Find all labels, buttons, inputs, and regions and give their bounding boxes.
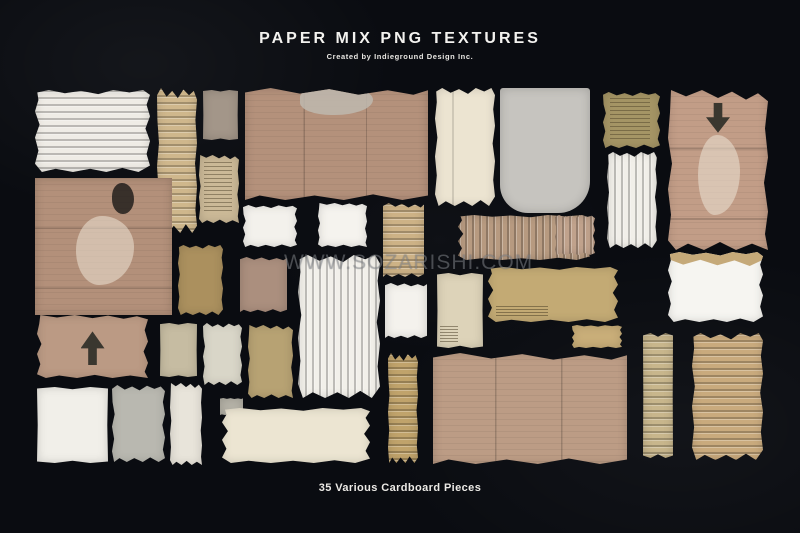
texture-piece-taupe-small-rectangle: [203, 90, 238, 140]
texture-piece-pink-corrugated-small: [555, 215, 595, 255]
texture-piece-kraft-panel-arrow-up: [37, 315, 148, 378]
texture-piece-kraft-panel-left-patched: [35, 178, 172, 315]
texture-piece-gray-torn-bottom-piece: [112, 385, 165, 462]
texture-piece-khaki-flat-rectangle: [160, 323, 197, 377]
texture-piece-gold-corrugated-mid-strip: [383, 203, 424, 277]
texture-piece-ivory-wide-bottom-piece: [222, 408, 370, 463]
texture-piece-gold-diagonal-strip: [388, 353, 418, 463]
texture-piece-white-scrap-3: [385, 283, 427, 338]
footer-caption: 35 Various Cardboard Pieces: [0, 482, 800, 494]
texture-piece-gold-wide-torn-piece: [488, 267, 618, 322]
texture-piece-white-corrugated-right: [607, 152, 657, 248]
texture-piece-tan-printed-scrap: [199, 155, 239, 223]
texture-piece-white-scrap-1: [243, 205, 297, 247]
arrow-up-mark: [81, 331, 105, 365]
texture-piece-cream-flat-printed: [437, 273, 483, 348]
texture-piece-white-ribbed-tall-center: [298, 255, 380, 398]
print-mark: [610, 98, 650, 140]
print-mark: [496, 306, 548, 318]
texture-piece-pink-panel-arrow-down: [668, 90, 768, 250]
texture-piece-white-over-tan-piece: [668, 252, 763, 322]
collage: [0, 0, 800, 533]
texture-piece-olive-printed-scrap: [603, 92, 660, 148]
smudge-mark: [112, 183, 134, 213]
texture-piece-tan-corrugated-bottom-right: [692, 333, 763, 460]
texture-piece-khaki-narrow-ribbed-strip: [643, 333, 673, 458]
print-mark: [440, 326, 458, 343]
texture-piece-kraft-panel-top-center: [245, 88, 428, 200]
poster-canvas: PAPER MIX PNG TEXTURES Created by Indieg…: [0, 0, 800, 533]
band-mark: [668, 252, 763, 266]
texture-piece-pale-tall-torn-piece: [203, 323, 242, 385]
texture-piece-white-square-bottom-left: [37, 387, 108, 463]
texture-piece-gold-small-strip: [572, 325, 622, 348]
crease-v-mark: [452, 88, 454, 206]
texture-piece-gray-smooth-rounded-piece: [500, 88, 590, 213]
texture-piece-mauve-torn-rectangle: [240, 257, 287, 312]
texture-piece-white-scrap-2: [318, 203, 367, 247]
texture-piece-big-panel-bottom-right: [433, 353, 627, 464]
print-mark: [204, 162, 232, 213]
texture-piece-white-corrugated-top-left: [35, 90, 150, 172]
arrow-down-mark: [706, 103, 730, 133]
texture-piece-white-tan-tall-scrap: [170, 383, 202, 465]
patch-mark: [300, 86, 373, 115]
texture-piece-gold-torn-mid-piece: [248, 325, 293, 398]
patch-mark: [698, 135, 740, 215]
texture-piece-cream-tall-folded-piece: [435, 88, 495, 206]
texture-piece-dark-gold-torn-piece: [178, 245, 223, 315]
patch-mark: [76, 216, 134, 285]
